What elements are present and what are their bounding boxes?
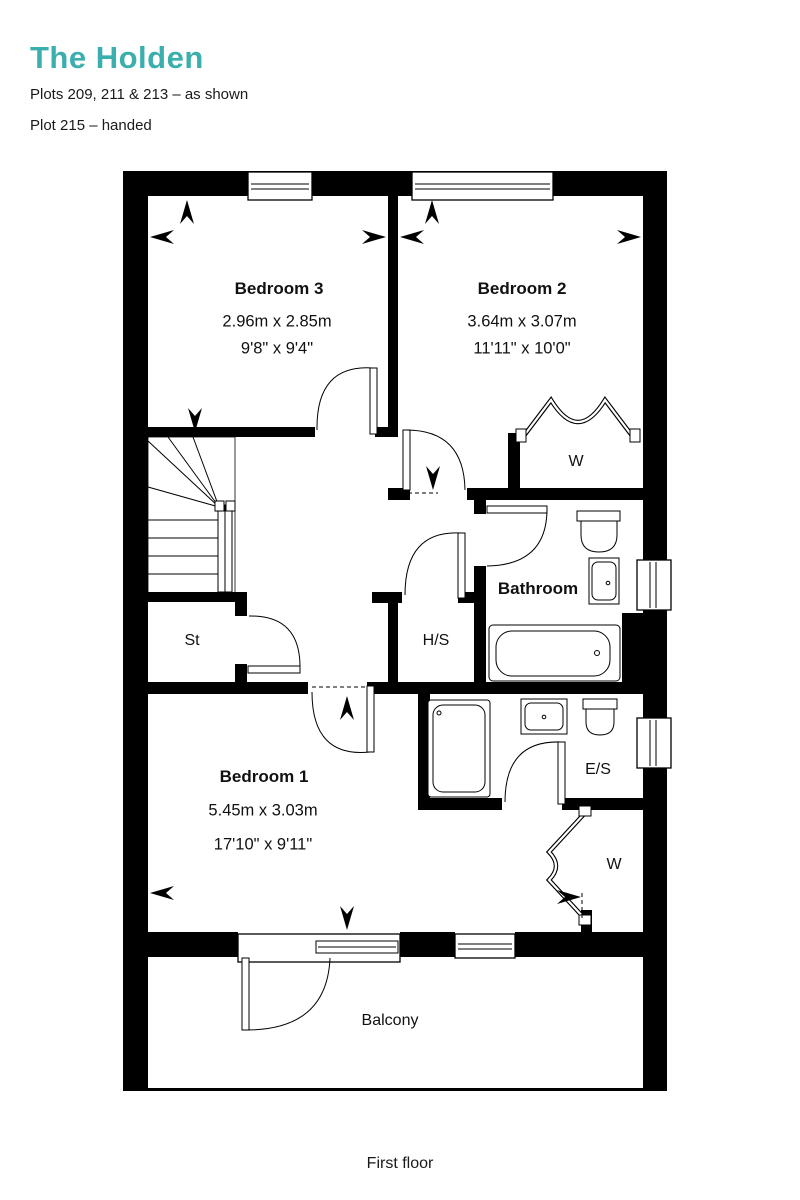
hs-label: H/S bbox=[423, 632, 450, 650]
window-bedroom3 bbox=[248, 172, 312, 200]
ensuite-label: E/S bbox=[585, 761, 611, 779]
sink-bathroom bbox=[589, 558, 619, 604]
floor-name-label: First floor bbox=[367, 1155, 434, 1173]
storage-label: St bbox=[184, 632, 199, 650]
bedroom2-metric: 3.64m x 3.07m bbox=[467, 313, 576, 332]
door-hs-cupboard bbox=[405, 533, 465, 598]
bedroom1-imperial: 17'10" x 9'11" bbox=[214, 836, 312, 855]
bedroom3-label: Bedroom 3 bbox=[235, 279, 324, 299]
door-storage bbox=[248, 616, 300, 673]
toilet-ensuite bbox=[583, 699, 617, 735]
wardrobe-bedroom1-label: W bbox=[606, 856, 621, 874]
bifold-wardrobe-bedroom1 bbox=[549, 806, 591, 925]
bedroom1-label: Bedroom 1 bbox=[220, 767, 309, 787]
door-bedroom3 bbox=[317, 368, 377, 434]
bedroom3-imperial: 9'8" x 9'4" bbox=[241, 340, 313, 359]
bifold-wardrobe-bedroom2 bbox=[516, 400, 640, 442]
bedroom3-metric: 2.96m x 2.85m bbox=[222, 313, 331, 332]
sink-ensuite bbox=[521, 699, 567, 734]
door-ensuite bbox=[505, 742, 565, 804]
window-bedroom2 bbox=[412, 172, 553, 200]
door-bedroom1 bbox=[312, 686, 374, 753]
bedroom2-label: Bedroom 2 bbox=[478, 279, 567, 299]
staircase bbox=[148, 437, 235, 595]
floorplan-page: The Holden Plots 209, 211 & 213 – as sho… bbox=[0, 0, 800, 1200]
window-balcony bbox=[455, 934, 515, 958]
bathroom-label: Bathroom bbox=[498, 579, 578, 599]
shower-ensuite bbox=[428, 700, 490, 797]
bath-tub bbox=[489, 625, 620, 681]
window-ensuite bbox=[637, 718, 671, 768]
bedroom2-imperial: 11'11" x 10'0" bbox=[473, 340, 570, 359]
toilet-bathroom bbox=[577, 511, 620, 552]
balcony-label: Balcony bbox=[362, 1012, 419, 1030]
bedroom1-metric: 5.45m x 3.03m bbox=[208, 802, 317, 821]
door-bathroom bbox=[487, 506, 547, 566]
window-bathroom bbox=[637, 560, 671, 610]
wardrobe-bedroom2-label: W bbox=[568, 453, 583, 471]
